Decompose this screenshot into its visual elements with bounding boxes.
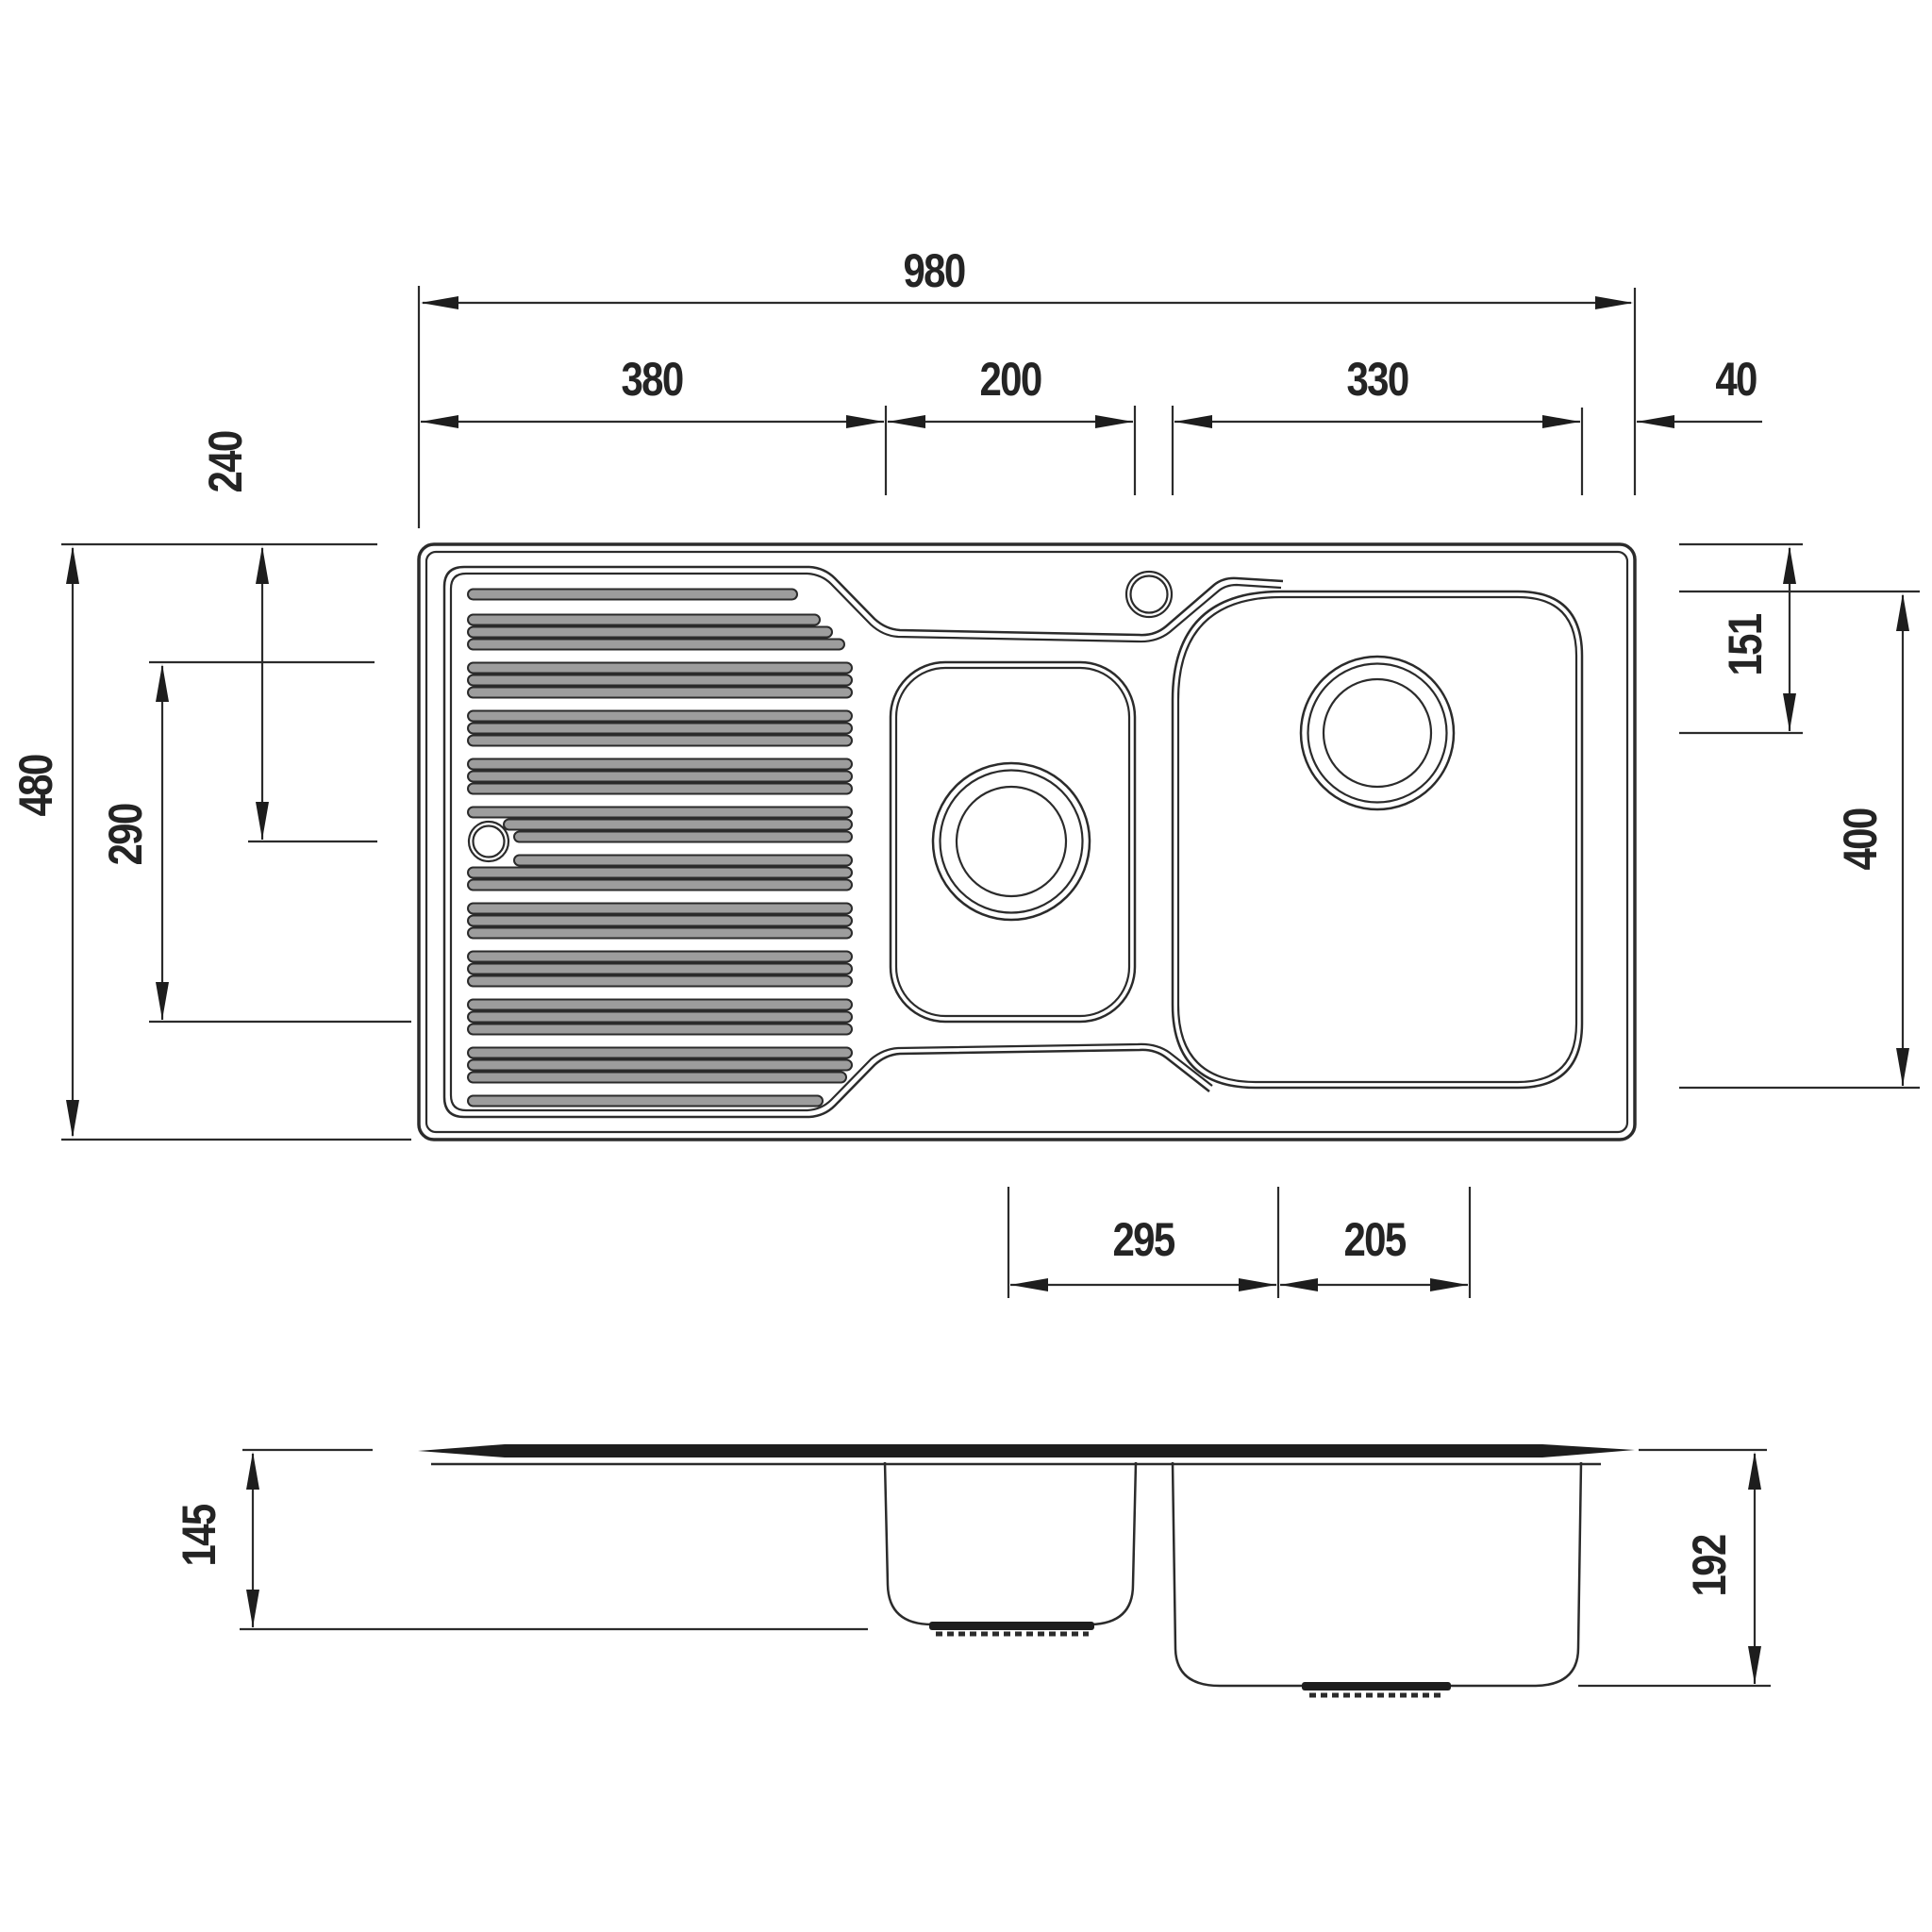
dim-label-drain-centre-spacing: 295 (1112, 1212, 1174, 1267)
dim-label-drainer-width: 380 (621, 352, 682, 407)
drainboard-hole (469, 822, 508, 861)
large-bowl (1173, 591, 1582, 1088)
dim-label-small-bowl-depth: 145 (172, 1505, 226, 1566)
dimension-lines (66, 296, 1909, 1684)
side-view-rim (418, 1444, 1635, 1457)
side-view (418, 1444, 1635, 1695)
dim-label-overall-width: 980 (903, 243, 964, 298)
dim-label-rim-to-large-drain: 151 (1718, 614, 1773, 675)
extension-lines (61, 286, 1920, 1686)
side-view-large-bowl (1173, 1462, 1581, 1686)
dim-label-large-bowl-width: 330 (1346, 352, 1407, 407)
faucet-hole (1126, 572, 1172, 617)
small-bowl (891, 662, 1135, 1022)
dim-label-large-bowl-depth: 192 (1682, 1535, 1737, 1596)
side-view-small-bowl (885, 1462, 1136, 1624)
dim-label-drain-to-right-edge: 205 (1343, 1212, 1405, 1267)
dim-label-right-edge-margin: 40 (1715, 352, 1756, 407)
sink-drawing-canvas (0, 0, 1932, 1932)
dim-label-overall-depth: 480 (8, 755, 63, 816)
dim-label-small-bowl-width: 200 (979, 352, 1041, 407)
dim-label-rim-to-small-drain: 240 (198, 431, 253, 492)
sink-technical-drawing-page: 980 380 200 330 40 240 290 480 151 400 2… (0, 0, 1932, 1932)
dim-label-small-bowl-length: 290 (98, 804, 153, 865)
dim-label-large-bowl-length: 400 (1833, 808, 1888, 870)
drainboard-ridges (468, 590, 852, 1107)
